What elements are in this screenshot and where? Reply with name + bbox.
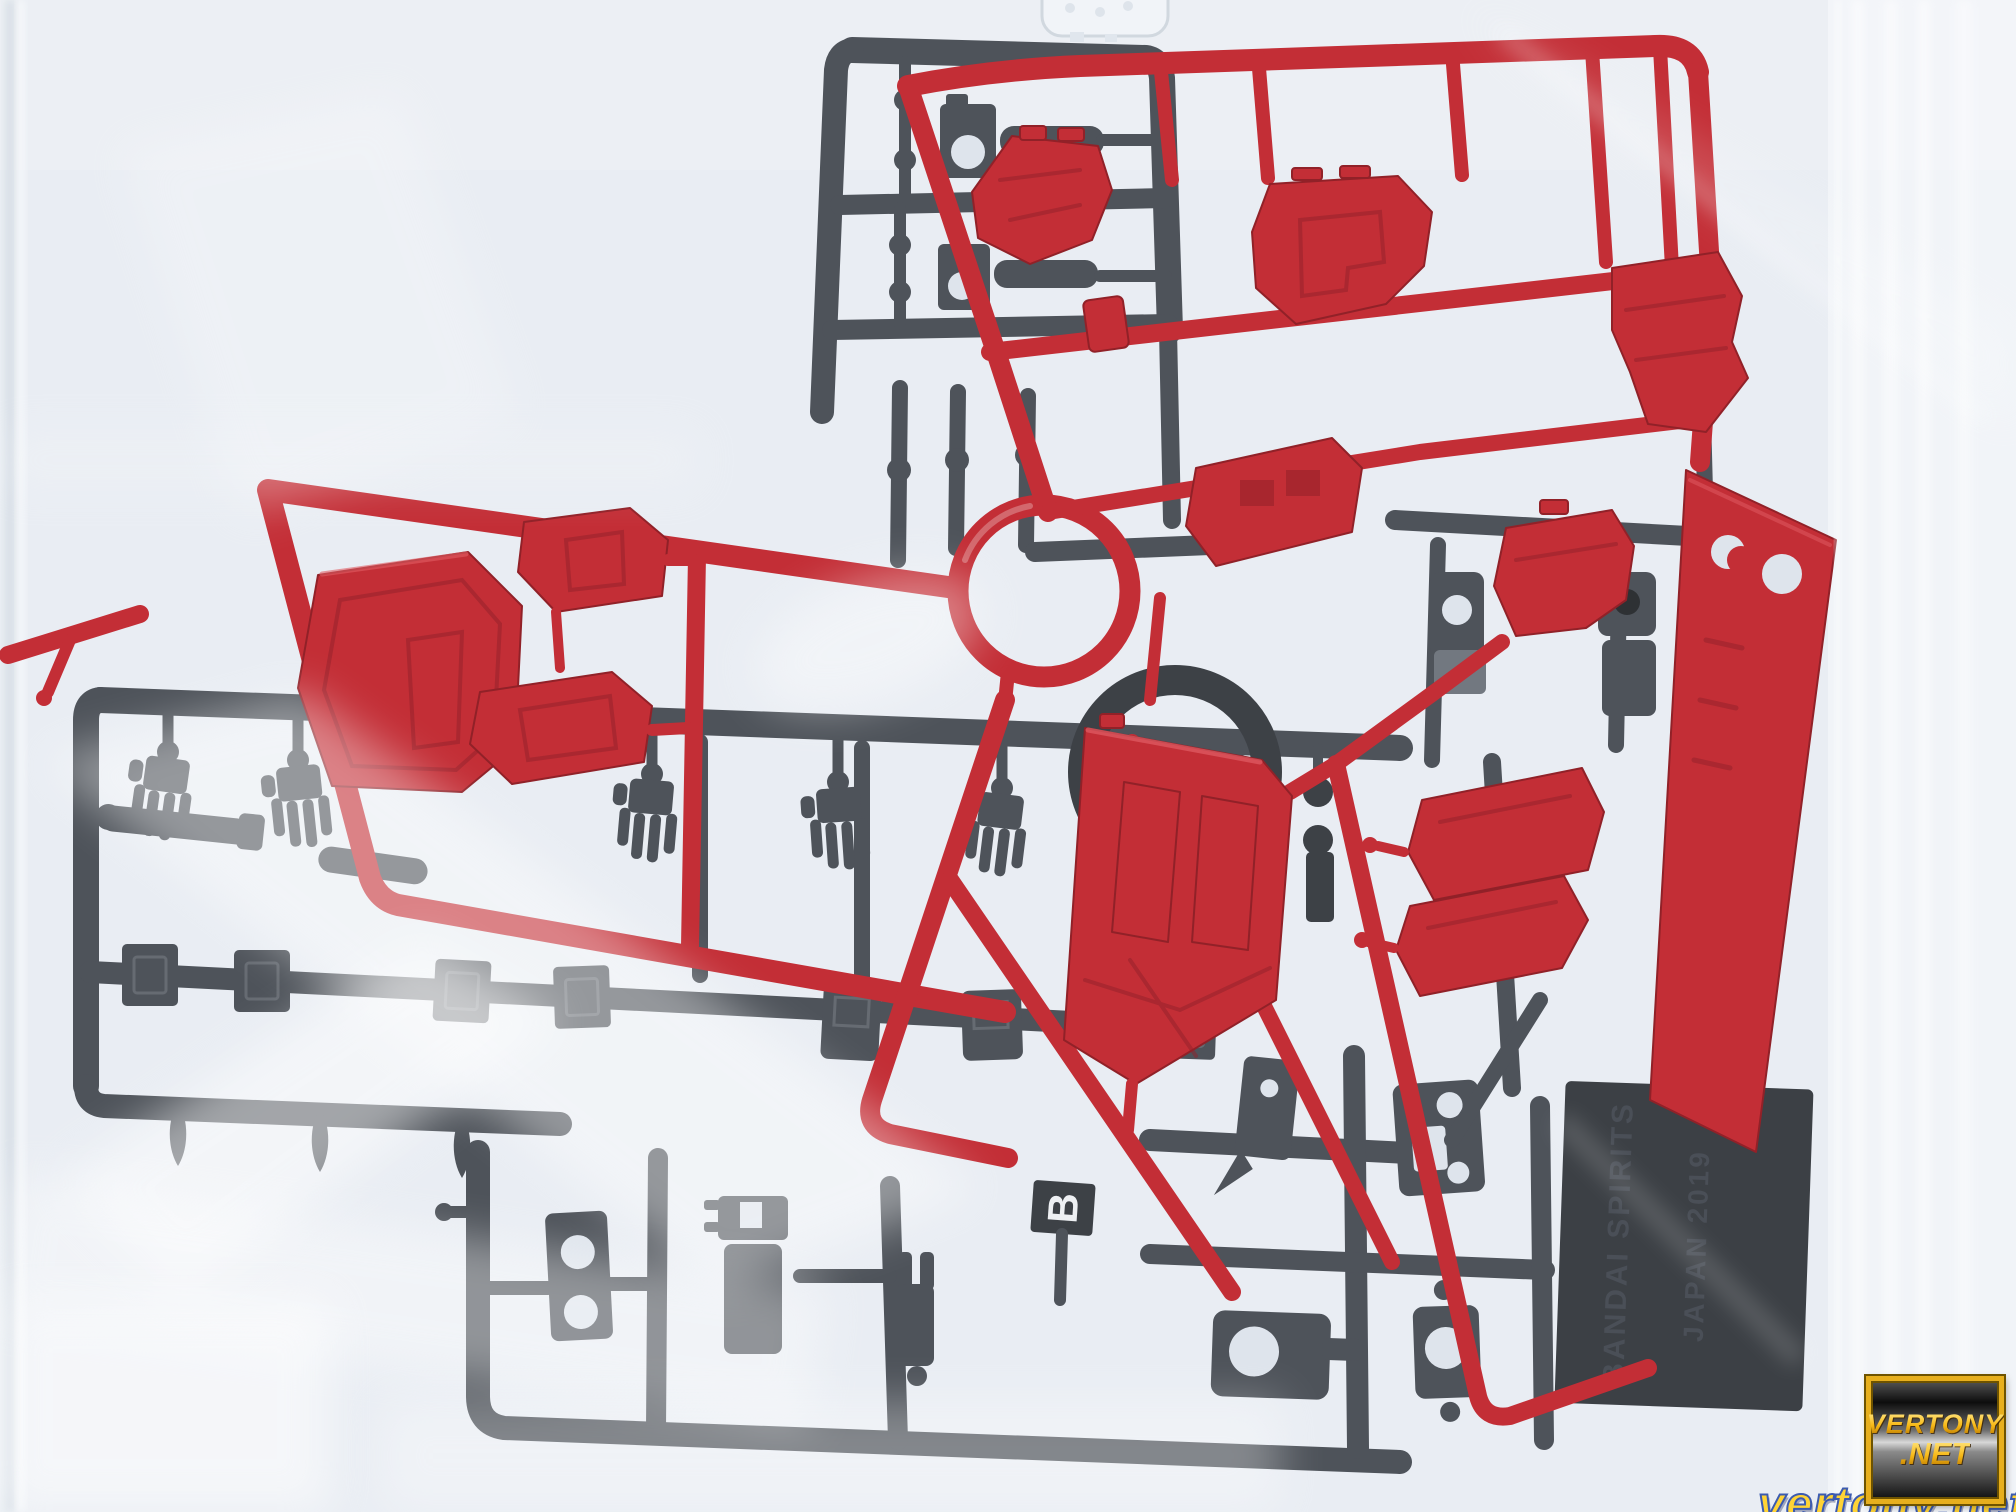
bag-fold-line	[1884, 0, 1898, 1512]
bag-fold-line	[1918, 0, 1930, 1512]
bag-glare-bottom	[380, 1400, 1280, 1512]
photo-model-kit-runners-in-bag: B BANDAI SPIRITS JAPAN 2019	[0, 0, 2016, 1512]
bag-glare-band	[0, 430, 700, 490]
bag-reflections	[0, 0, 2016, 1512]
bag-fold-line	[1956, 0, 1972, 1512]
photo-canvas: B BANDAI SPIRITS JAPAN 2019	[0, 0, 2016, 1512]
bag-glare-corner	[0, 1300, 330, 1512]
bag-fold-line	[1852, 0, 1864, 1512]
